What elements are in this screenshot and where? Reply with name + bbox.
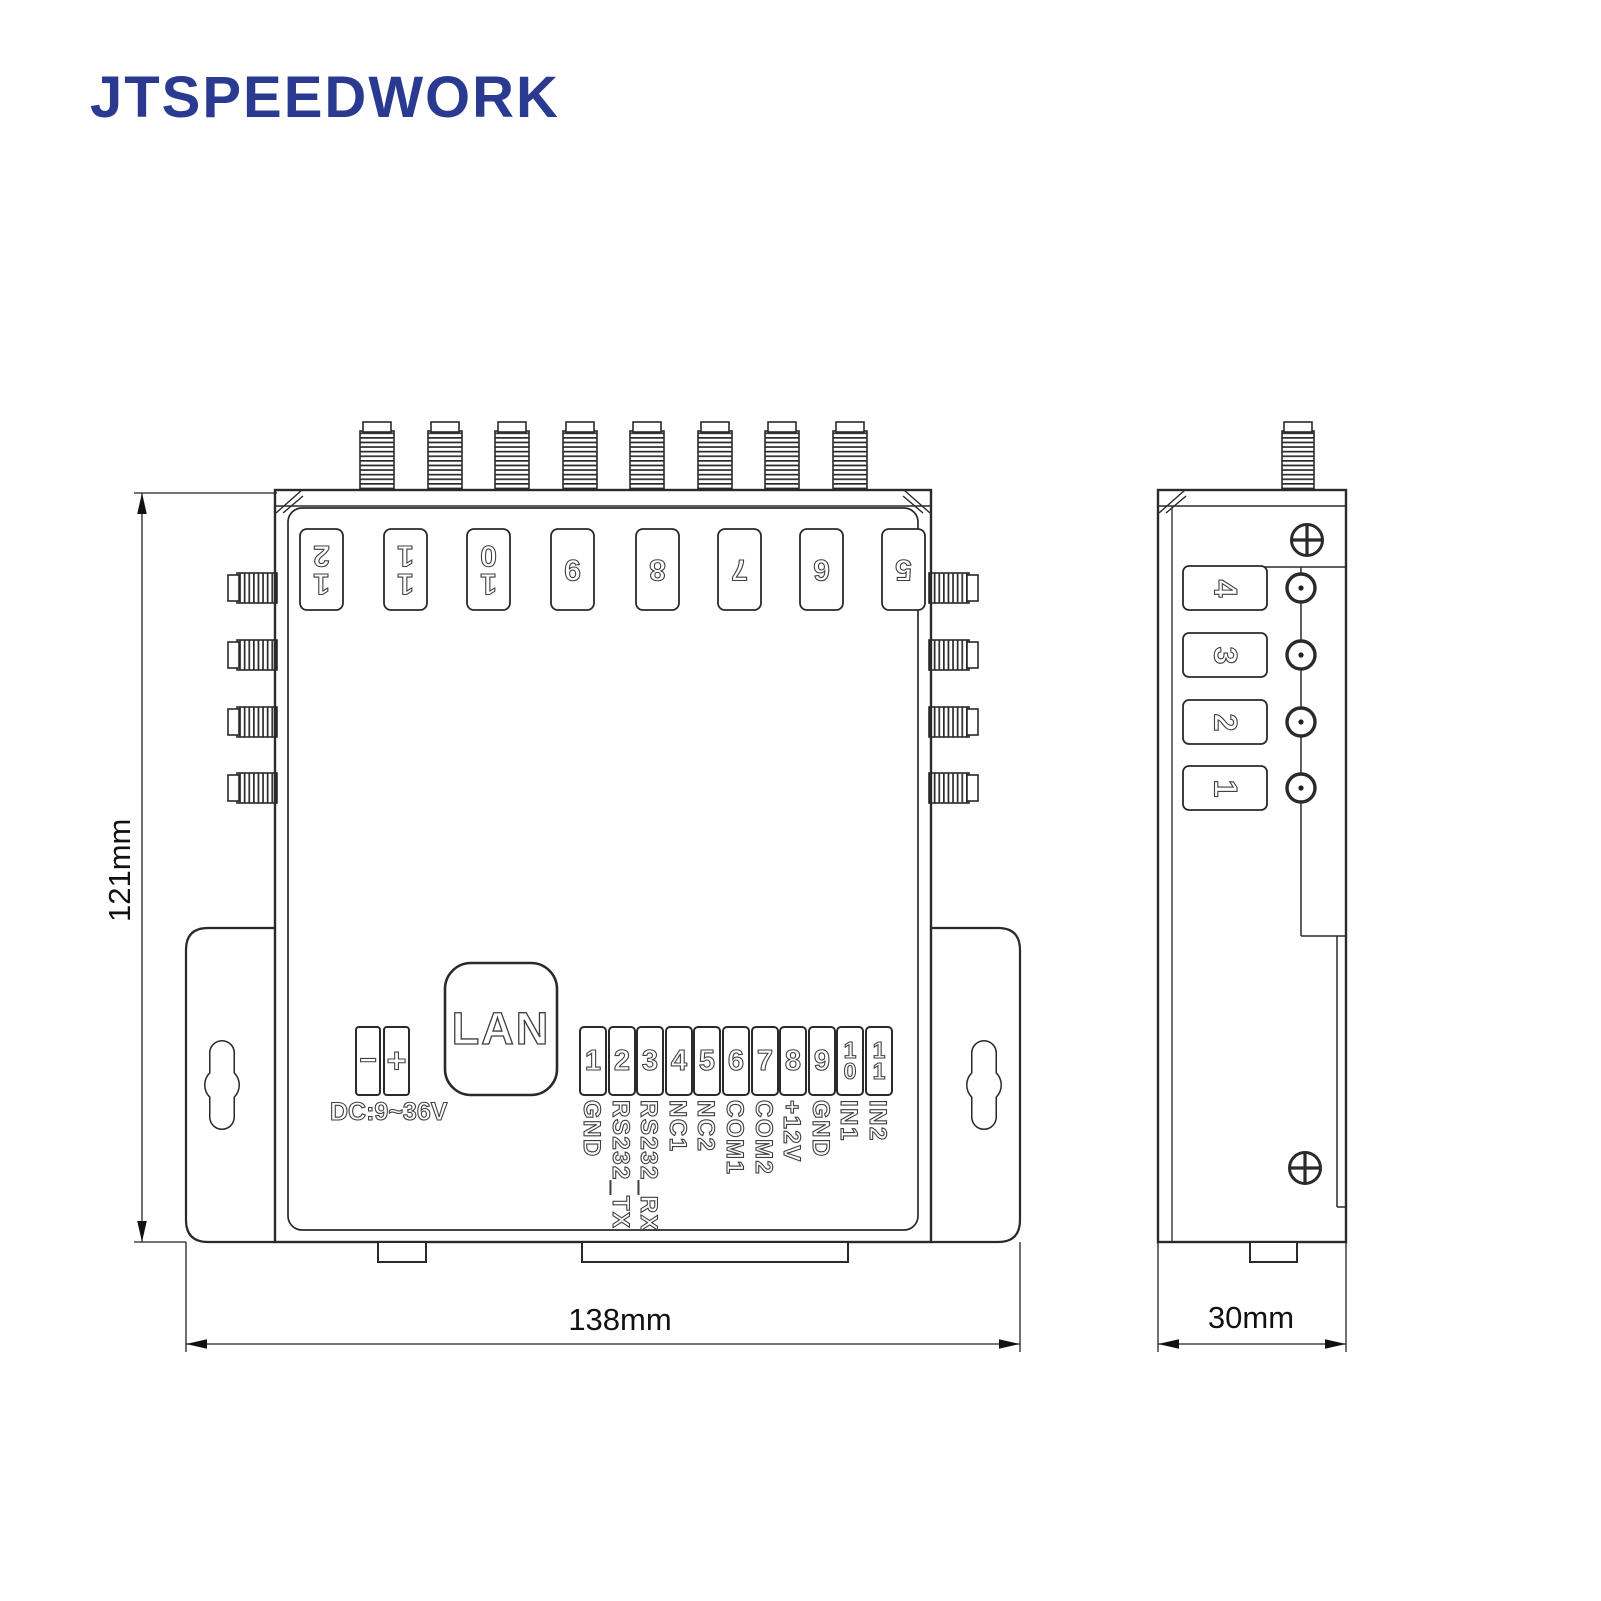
front-bottom-feet bbox=[378, 1242, 848, 1262]
brand-logo: JTSPEEDWORK bbox=[90, 64, 560, 131]
pin-number-7: 7 bbox=[752, 1027, 778, 1095]
depth-dimension-text: 30mm bbox=[1176, 1300, 1326, 1336]
pin-number-2: 2 bbox=[609, 1027, 635, 1095]
side-port-label-3: 3 bbox=[1183, 633, 1267, 677]
top-port-label-9: 9 bbox=[551, 529, 594, 610]
pin-label-gnd-9: GND bbox=[806, 1100, 834, 1158]
dc-minus-terminal-label: − bbox=[356, 1027, 380, 1095]
technical-drawing-page: JTSPEEDWORK 1 2 1 1 1 0 9 8 7 6 5 − + DC… bbox=[0, 0, 1601, 1601]
pin-label-gnd-1: GND bbox=[577, 1100, 605, 1158]
height-dimension-text: 121mm bbox=[102, 819, 138, 922]
side-antenna-connector bbox=[1282, 422, 1314, 490]
dc-voltage-label: DC:9~36V bbox=[330, 1098, 447, 1127]
top-port-label-7: 7 bbox=[718, 529, 761, 610]
top-antenna-connectors bbox=[360, 422, 867, 490]
keyhole-slot-right bbox=[968, 1042, 1001, 1129]
right-antenna-connectors bbox=[929, 573, 978, 803]
side-port-digit: 1 bbox=[1206, 779, 1243, 797]
dc-plus-terminal-label: + bbox=[384, 1027, 409, 1095]
top-port-label-6: 6 bbox=[800, 529, 843, 610]
top-port-label-5: 5 bbox=[882, 529, 925, 610]
left-antenna-connectors bbox=[228, 573, 277, 803]
side-port-digit: 4 bbox=[1206, 579, 1243, 597]
pin-number-6: 6 bbox=[723, 1027, 749, 1095]
pin-number-4: 4 bbox=[666, 1027, 692, 1095]
side-port-label-1: 1 bbox=[1183, 766, 1267, 810]
pin-label-nc2: NC2 bbox=[691, 1100, 719, 1153]
pin-label-rs232-tx: RS232_TX bbox=[606, 1100, 634, 1229]
phillips-screw-bottom bbox=[1290, 1153, 1321, 1184]
width-dimension-text: 138mm bbox=[545, 1302, 695, 1338]
side-port-label-4: 4 bbox=[1183, 566, 1267, 610]
pin-number-11: 1 1 bbox=[866, 1027, 892, 1095]
phillips-screw-top bbox=[1292, 525, 1323, 556]
pin-number-8: 8 bbox=[780, 1027, 806, 1095]
pin-number-1: 1 bbox=[580, 1027, 606, 1095]
top-port-label-10: 1 0 bbox=[467, 529, 510, 610]
pin-label-in2: IN2 bbox=[863, 1100, 891, 1142]
pin-label-rs232-rx: RS232_RX bbox=[634, 1100, 662, 1232]
pin-number-3: 3 bbox=[637, 1027, 663, 1095]
pin-number-9: 9 bbox=[809, 1027, 835, 1095]
side-port-digit: 3 bbox=[1206, 646, 1243, 664]
pin-label-com1: COM1 bbox=[720, 1100, 748, 1175]
side-view-drawing bbox=[1158, 422, 1346, 1262]
side-port-digit: 2 bbox=[1206, 713, 1243, 731]
pin-label-in1: IN1 bbox=[834, 1100, 862, 1142]
keyhole-slot-left bbox=[206, 1042, 239, 1129]
pin-label-com2: COM2 bbox=[749, 1100, 777, 1175]
pin-number-5: 5 bbox=[694, 1027, 720, 1095]
pin-label-12v: +12V bbox=[777, 1100, 805, 1163]
side-port-label-2: 2 bbox=[1183, 700, 1267, 744]
pin-label-nc1: NC1 bbox=[663, 1100, 691, 1153]
top-port-label-8: 8 bbox=[636, 529, 679, 610]
top-port-label-12: 1 2 bbox=[300, 529, 343, 610]
top-port-label-11: 1 1 bbox=[384, 529, 427, 610]
side-bottom-foot bbox=[1250, 1242, 1297, 1262]
pin-number-10: 1 0 bbox=[837, 1027, 863, 1095]
drawing-canvas bbox=[0, 0, 1601, 1601]
lan-port-label: LAN bbox=[445, 963, 557, 1095]
